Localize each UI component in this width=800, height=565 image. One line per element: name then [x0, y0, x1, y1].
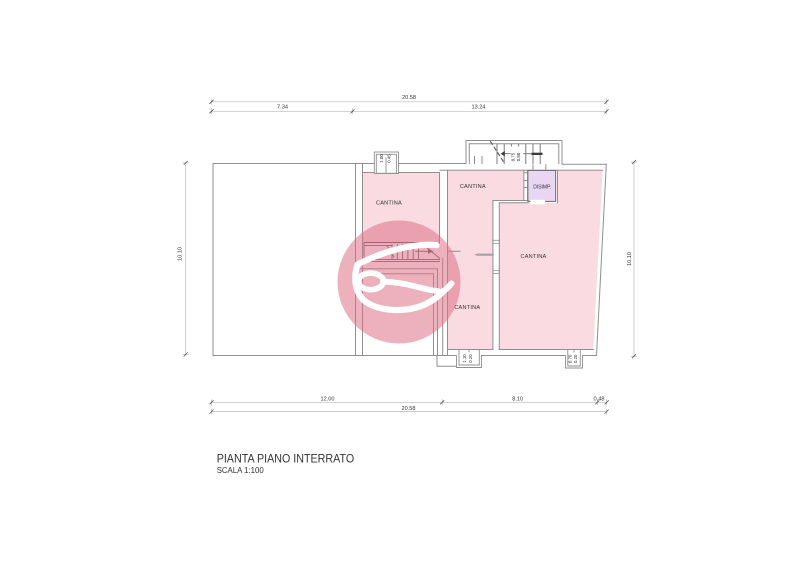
- svg-text:0.75: 0.75: [511, 152, 516, 161]
- svg-text:PIANTA PIANO INTERRATO: PIANTA PIANO INTERRATO: [217, 452, 355, 466]
- svg-text:0.88: 0.88: [516, 152, 521, 161]
- svg-text:20.58: 20.58: [402, 406, 416, 412]
- svg-text:0.70: 0.70: [567, 354, 572, 363]
- svg-text:0.45: 0.45: [387, 154, 392, 163]
- svg-text:0.20: 0.20: [573, 354, 578, 363]
- svg-text:8.10: 8.10: [512, 396, 523, 402]
- svg-text:CANTINA: CANTINA: [454, 305, 480, 311]
- svg-text:1.00: 1.00: [379, 154, 384, 163]
- svg-text:SCALA 1:100: SCALA 1:100: [217, 466, 265, 475]
- svg-text:7.34: 7.34: [277, 104, 288, 110]
- svg-text:13.24: 13.24: [472, 104, 486, 110]
- svg-text:CANTINA: CANTINA: [376, 201, 402, 207]
- svg-text:1.10: 1.10: [462, 354, 467, 363]
- svg-text:0.48: 0.48: [594, 396, 605, 402]
- svg-text:12.00: 12.00: [321, 396, 335, 402]
- svg-text:10.10: 10.10: [178, 247, 184, 261]
- svg-text:0.20: 0.20: [468, 354, 473, 363]
- svg-text:10.10: 10.10: [627, 252, 633, 266]
- svg-text:CANTINA: CANTINA: [460, 184, 486, 190]
- svg-text:20.58: 20.58: [402, 95, 416, 101]
- svg-text:DISIMP.: DISIMP.: [533, 184, 551, 190]
- svg-text:CANTINA: CANTINA: [521, 254, 547, 260]
